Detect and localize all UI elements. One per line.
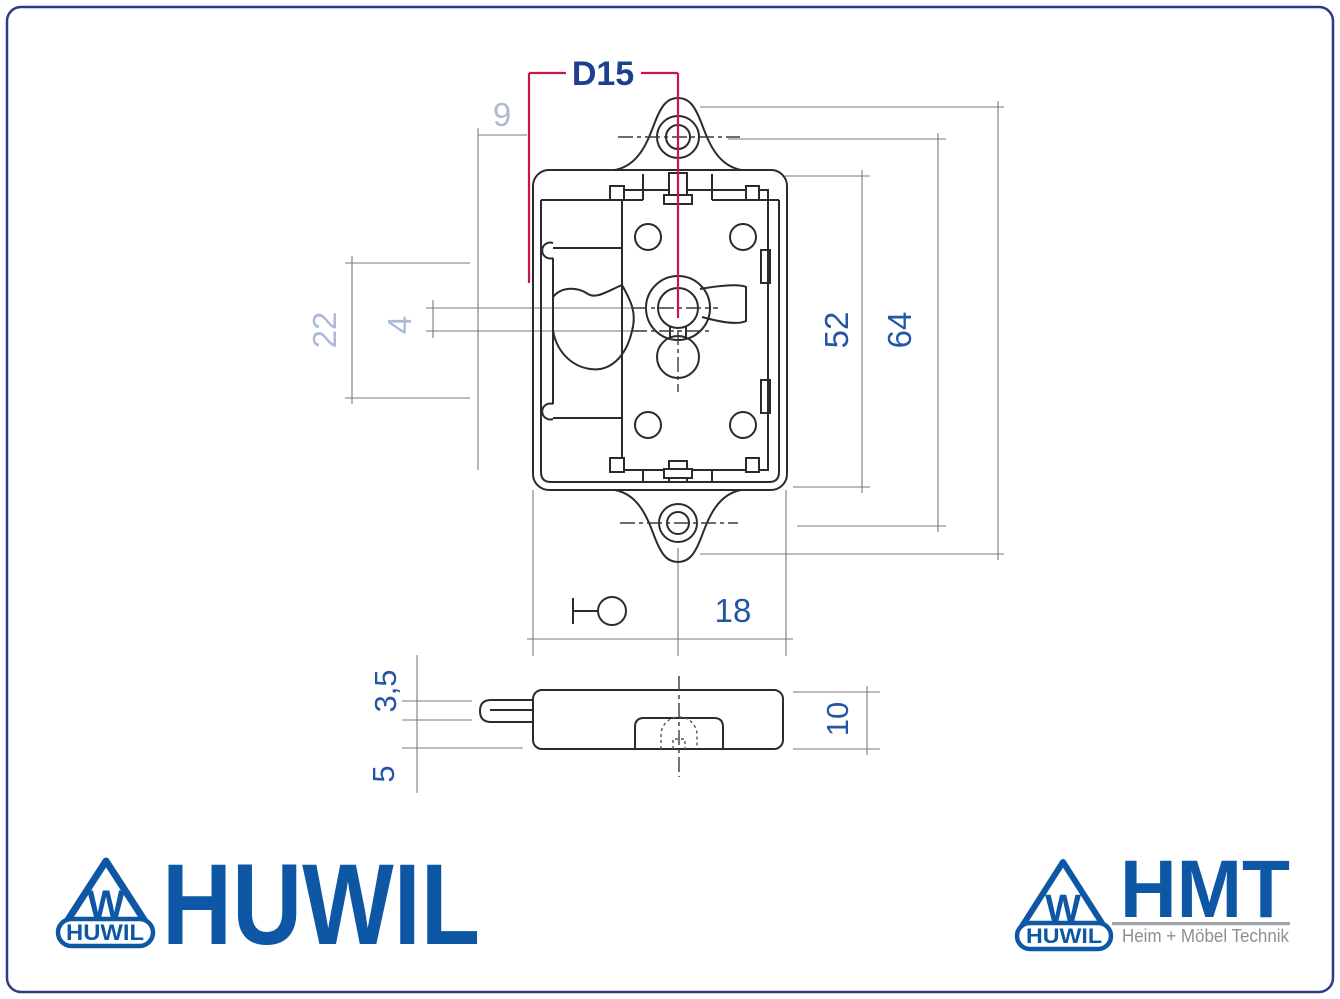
rivet: [730, 224, 756, 250]
dim-label-5: 5: [366, 765, 401, 782]
front-view: [533, 98, 787, 625]
dim-label-d15: D15: [572, 55, 634, 93]
lock-plate: [622, 190, 768, 470]
technical-drawing: D15 9 22 4 52 64 18 3,5 5 10 W HUWIL HUW…: [0, 0, 1340, 999]
rivet: [635, 412, 661, 438]
dim-label-52: 52: [818, 312, 855, 349]
lock-body-outline: [533, 170, 787, 490]
hmt-tagline: Heim + Möbel Technik: [1122, 926, 1290, 946]
side-body: [533, 690, 783, 749]
rivet: [635, 224, 661, 250]
key-symbol: [573, 598, 598, 624]
huwil-wordmark: HUWIL: [162, 841, 480, 969]
side-view: [480, 690, 783, 749]
dim-label-10: 10: [820, 702, 855, 736]
hmt-logo: W HUWIL HMT Heim + Möbel Technik: [1017, 844, 1290, 949]
dim-label-18: 18: [715, 592, 752, 629]
red-dimension-lines: [529, 73, 678, 318]
huwil-logo: W HUWIL HUWIL: [58, 841, 480, 969]
drawing-sheet: D15 9 22 4 52 64 18 3,5 5 10 W HUWIL HUW…: [0, 0, 1340, 999]
rivet: [730, 412, 756, 438]
hmt-emblem-text: HUWIL: [1026, 925, 1102, 948]
key-symbol-bow: [598, 597, 626, 625]
hmt-wordmark: HMT: [1120, 844, 1290, 935]
dim-label-3-5: 3,5: [368, 669, 403, 712]
hmt-divider: [1112, 922, 1290, 925]
dim-label-4: 4: [381, 316, 418, 334]
dim-label-9: 9: [493, 96, 511, 133]
huwil-emblem-text: HUWIL: [66, 920, 144, 945]
dim-label-64: 64: [881, 312, 918, 349]
cam-lever: [700, 285, 746, 323]
dim-label-22: 22: [306, 312, 343, 349]
side-latch: [480, 700, 533, 722]
